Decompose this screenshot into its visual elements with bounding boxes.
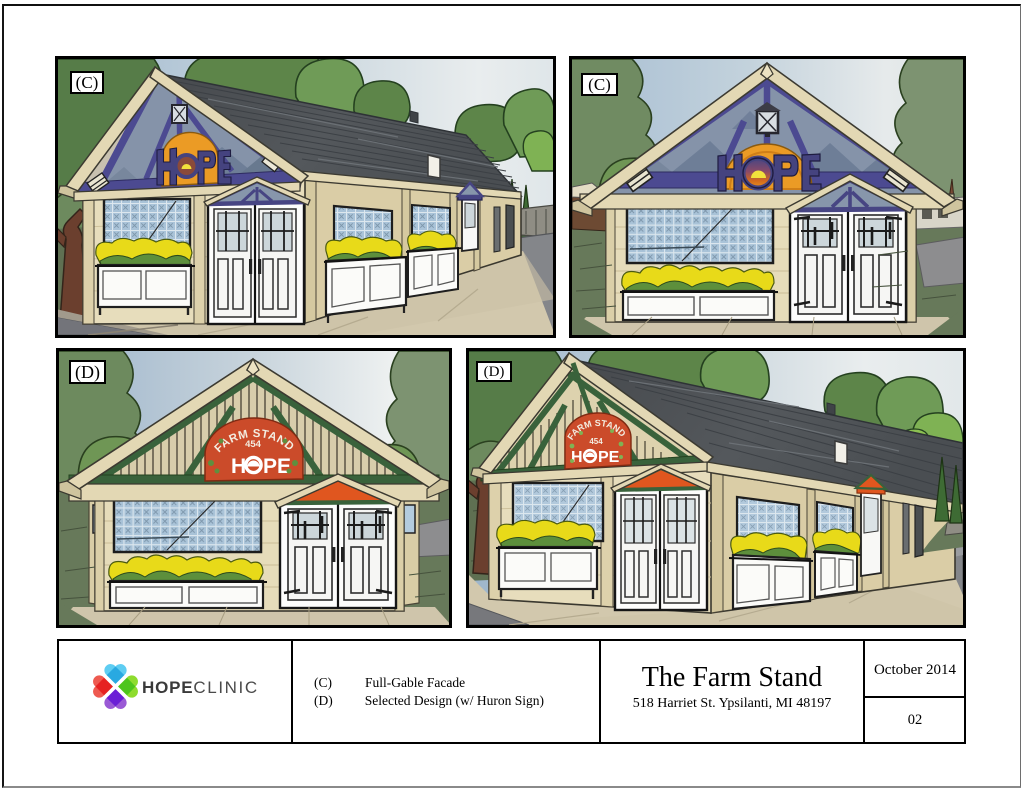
svg-text:H: H [231,455,246,478]
svg-text:454: 454 [589,437,603,446]
svg-text:PE: PE [263,455,291,478]
svg-text:H: H [571,449,583,466]
svg-text:454: 454 [245,439,262,450]
svg-text:PE: PE [598,449,620,466]
